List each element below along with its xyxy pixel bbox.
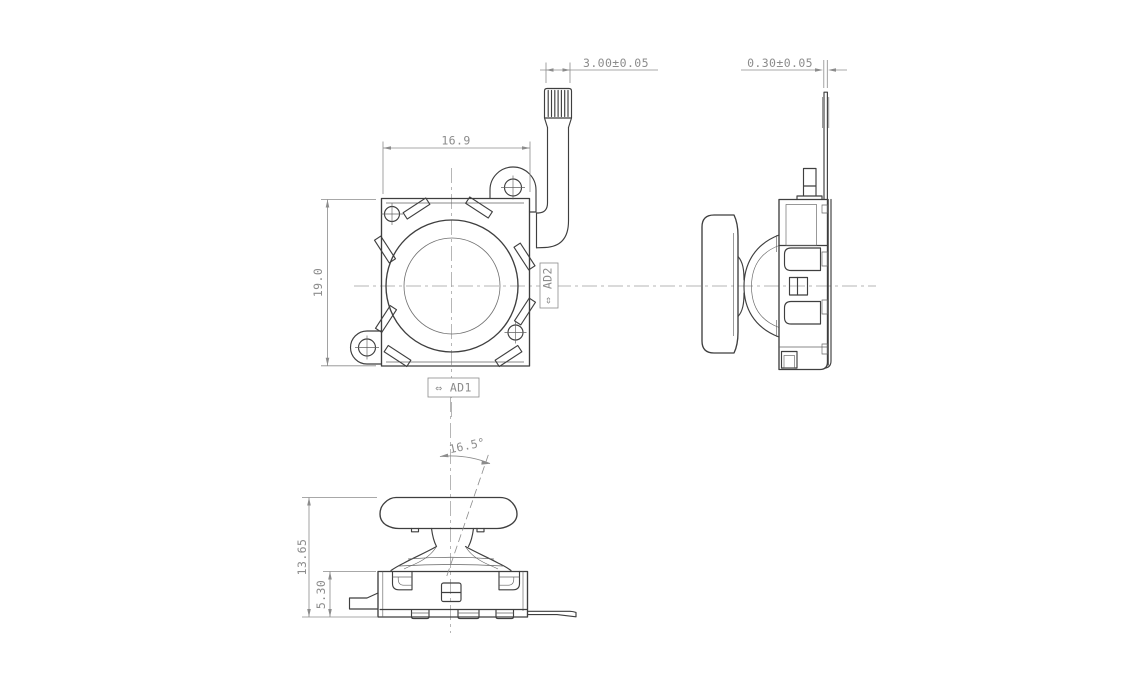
dim-body-width-text: 16.9 bbox=[441, 134, 470, 148]
bracket-right-detail bbox=[499, 577, 520, 585]
internal-box-top bbox=[786, 205, 817, 246]
spring-clip bbox=[514, 243, 535, 270]
bracket-right bbox=[499, 572, 520, 590]
fpc-lower bbox=[825, 200, 832, 369]
spring-clip bbox=[384, 346, 411, 367]
hole-crosshair bbox=[501, 176, 525, 200]
dim-body-height-text: 19.0 bbox=[311, 268, 325, 297]
connector-contact-stripes bbox=[548, 91, 568, 117]
internal-block-lower bbox=[785, 302, 821, 325]
front-view bbox=[351, 89, 572, 367]
fpc-exit bbox=[528, 611, 577, 617]
spring-clip bbox=[403, 198, 430, 219]
dim-overall-height: 13.65 bbox=[295, 498, 377, 618]
screw-crosshair bbox=[505, 322, 527, 344]
dim-base-height: 5.30 bbox=[314, 572, 376, 618]
stick-bell-inner bbox=[752, 246, 780, 328]
label-ad1: ⇔ AD1 bbox=[428, 378, 479, 397]
dim-fpc-width-text: 3.00±0.05 bbox=[583, 56, 649, 70]
dim-base-height-text: 5.30 bbox=[314, 580, 328, 609]
front-body-outline bbox=[382, 199, 530, 367]
profile-view bbox=[350, 452, 577, 619]
screw-crosshair bbox=[381, 203, 403, 225]
bracket-left-detail bbox=[393, 577, 413, 585]
fpc-cable-arm bbox=[537, 89, 572, 248]
centerlines bbox=[354, 168, 876, 633]
spring-clip bbox=[466, 197, 493, 218]
dim-overall-height-text: 13.65 bbox=[295, 539, 309, 576]
axis-labels: ⇔ AD1 ⇔ AD2 bbox=[428, 263, 558, 397]
profile-stick-cap bbox=[380, 498, 517, 529]
fpc-cable-side bbox=[823, 92, 831, 368]
top-tab bbox=[797, 169, 822, 200]
side-view bbox=[702, 92, 831, 369]
technical-drawing: 16.9 19.0 3.00±0.05 0.30±0.05 13 bbox=[0, 0, 1144, 694]
label-ad2: ⇔ AD2 bbox=[540, 263, 558, 308]
fpc-upper bbox=[824, 92, 827, 199]
drawing-canvas: 16.9 19.0 3.00±0.05 0.30±0.05 13 bbox=[0, 0, 1144, 694]
spring-clip bbox=[495, 346, 522, 367]
dim-fpc-thickness: 0.30±0.05 bbox=[741, 56, 847, 88]
profile-dome-inner bbox=[404, 547, 498, 570]
ad2-text: ⇔ AD2 bbox=[541, 267, 555, 304]
bottom-box-inner bbox=[784, 356, 795, 369]
dim-body-height: 19.0 bbox=[311, 200, 376, 366]
spring-clip bbox=[376, 306, 397, 333]
arm-left-edge bbox=[537, 128, 548, 214]
spring-clip bbox=[515, 298, 536, 325]
side-stick-cap bbox=[702, 215, 738, 353]
dim-body-width: 16.9 bbox=[383, 134, 530, 195]
internal-block-upper bbox=[785, 248, 821, 271]
dim-fpc-width: 3.00±0.05 bbox=[540, 56, 658, 83]
hole-crosshair bbox=[355, 336, 379, 360]
right-edge-details bbox=[822, 205, 828, 354]
arm-right-edge bbox=[537, 128, 569, 248]
stick-neck bbox=[738, 257, 744, 317]
profile-neck bbox=[432, 529, 474, 547]
dim-tilt-angle-text: 16.5° bbox=[448, 435, 487, 456]
profile-base-outline bbox=[378, 572, 528, 618]
dimensions: 16.9 19.0 3.00±0.05 0.30±0.05 13 bbox=[295, 56, 847, 617]
ad1-text: ⇔ AD1 bbox=[435, 381, 472, 395]
side-tab-left bbox=[350, 593, 379, 609]
spring-clips bbox=[375, 197, 536, 366]
dim-fpc-thickness-text: 0.30±0.05 bbox=[747, 56, 813, 70]
bracket-left bbox=[393, 572, 413, 590]
